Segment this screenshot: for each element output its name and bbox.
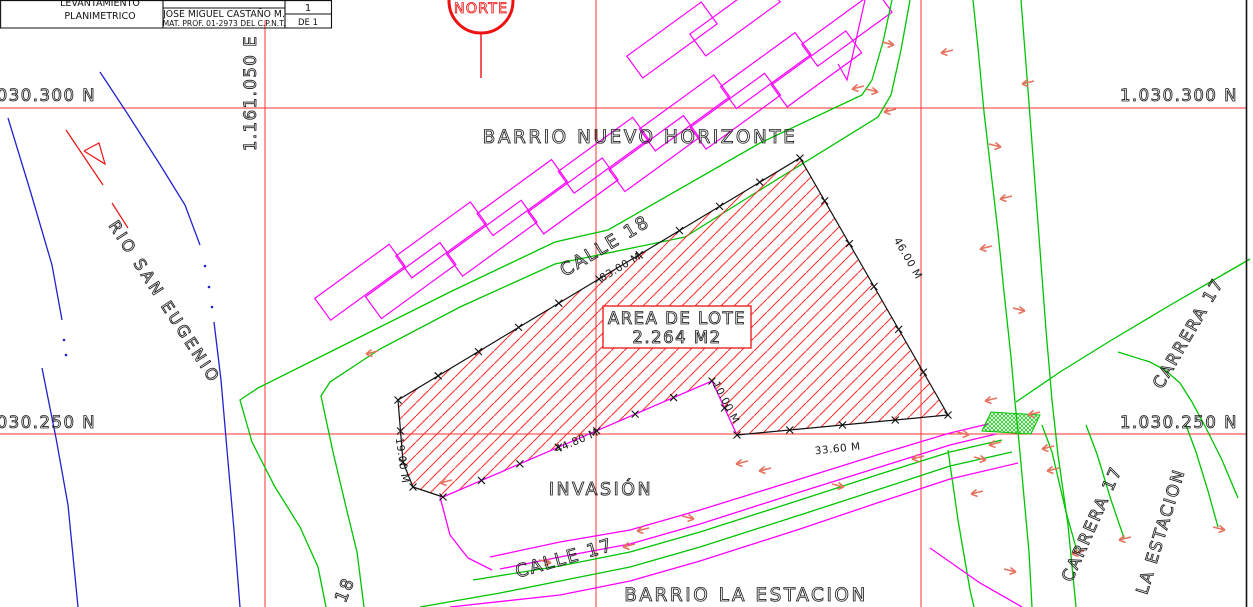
building-outline	[315, 244, 405, 320]
la-estacion-road-3	[1186, 425, 1218, 527]
tree-marker	[884, 108, 896, 115]
la-estacion-road-1	[1042, 425, 1077, 551]
invasion-boundary-descent	[440, 497, 492, 570]
building-partial-outline	[838, 0, 865, 80]
tree-marker	[971, 490, 983, 497]
cad-drawing: AREA DE LOTE 2.264 M2 83.00 M 46.00 M 33…	[0, 0, 1253, 607]
label-rio-san-eugenio: RIO SAN EUGENIO	[105, 217, 225, 387]
building-outline	[447, 200, 537, 276]
tree-marker	[1013, 307, 1025, 314]
label-barrio-la-estacion: BARRIO LA ESTACION	[624, 585, 868, 606]
tree-marker	[989, 143, 1001, 150]
tree-marker	[1119, 536, 1131, 543]
label-barrio-nuevo-horizonte: BARRIO NUEVO HORIZONTE	[483, 127, 798, 148]
coord-bottom-left: 1.030.250 N	[0, 413, 96, 432]
tree-marker	[985, 397, 997, 404]
river-bank-left	[8, 118, 62, 320]
building-outline	[528, 158, 618, 234]
magenta-bottom-right	[930, 548, 1022, 607]
tree-marker	[1213, 526, 1225, 533]
river-bank-right	[100, 72, 200, 245]
north-arrow: NORTE	[449, 0, 513, 78]
tree-marker	[736, 460, 748, 467]
survey-drawing-canvas: AREA DE LOTE 2.264 M2 83.00 M 46.00 M 33…	[0, 0, 1253, 607]
area-label-value: 2.264 M2	[632, 328, 721, 347]
building-outline	[721, 33, 811, 109]
river-bank-left-lower	[42, 368, 78, 607]
label-calle-17: CALLE 17	[513, 535, 616, 583]
tree-marker	[866, 88, 878, 95]
benchmark-symbol	[66, 130, 128, 228]
building-outline	[366, 243, 456, 319]
building-outline	[771, 31, 861, 107]
tree-marker	[974, 456, 986, 463]
area-label-title: AREA DE LOTE	[608, 309, 746, 328]
coord-bottom-right: 1.030.250 N	[1120, 413, 1238, 432]
tree-marker	[682, 515, 694, 522]
building-outline	[477, 160, 567, 236]
title-sheet-number: 1	[305, 3, 311, 14]
river-rio-san-eugenio	[8, 72, 240, 607]
dim-46m: 46.00 M	[891, 236, 924, 282]
tree-marker	[1004, 568, 1016, 575]
building-outline	[690, 0, 780, 56]
tree-marker	[852, 85, 864, 92]
tree-marker	[941, 49, 953, 56]
building-outline	[627, 2, 717, 78]
coord-east: 1.161.050 E	[241, 35, 260, 151]
green-branch-bottom-right	[948, 450, 974, 607]
coord-top-left: 1.030.300 N	[0, 86, 96, 105]
label-carrera-18: CARRERA 18	[293, 574, 359, 607]
building-outline	[396, 202, 486, 278]
label-la-estacion: LA ESTACION	[1133, 466, 1189, 596]
tree-marker	[1042, 445, 1054, 452]
tree-marker	[1000, 195, 1012, 202]
calle17-green-2	[420, 452, 1012, 607]
tree-marker	[366, 350, 378, 357]
label-invasion: INVASIÓN	[549, 478, 653, 500]
north-arrow-label: NORTE	[454, 1, 508, 17]
bridge-hatched	[982, 412, 1040, 434]
carrera17-west-edge	[973, 0, 1032, 607]
title-registration: MAT. PROF. 01-2973 DEL C.P.N.T.	[163, 19, 286, 28]
dim-33m: 33.60 M	[814, 441, 861, 458]
tree-marker	[759, 467, 771, 474]
label-carrera-17-upper: CARRERA 17	[1149, 275, 1228, 392]
title-line1: LEVANTAMIENTO	[60, 0, 140, 9]
area-label-box: AREA DE LOTE 2.264 M2	[603, 306, 751, 348]
tree-marker	[882, 41, 894, 48]
title-line2: PLANIMETRICO	[64, 11, 135, 22]
river-bank-right-lower	[214, 322, 240, 607]
title-sheet-of: DE 1	[298, 18, 318, 28]
tree-marker	[980, 245, 992, 252]
title-block: LEVANTAMIENTO PLANIMETRICO JOSE MIGUEL C…	[0, 0, 332, 28]
coord-top-right: 1.030.300 N	[1120, 86, 1238, 105]
